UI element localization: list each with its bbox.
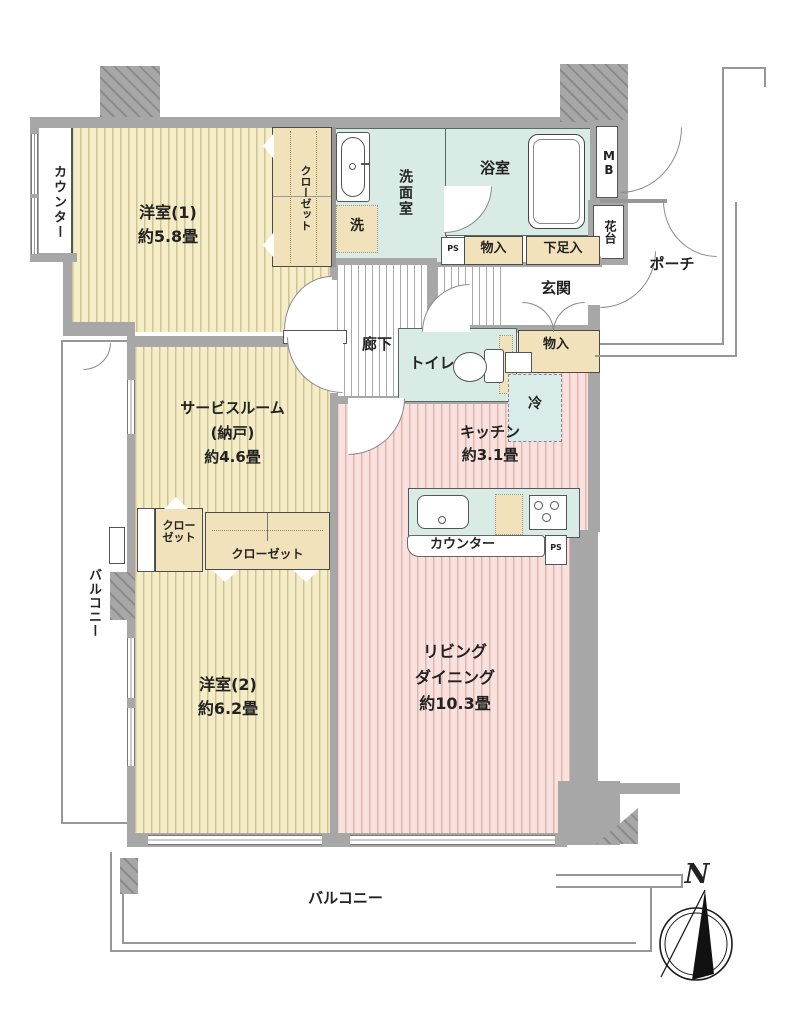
label-balcony-left: バルコニー <box>80 545 100 660</box>
label-closet-small: クローゼット <box>158 520 200 556</box>
closet-west1-dots-1 <box>290 131 292 263</box>
label-washroom: 洗面室 <box>392 140 412 245</box>
window-western2-west-1 <box>127 638 135 698</box>
room-service-western2-floor <box>135 347 330 835</box>
window-western2-west-2 <box>127 708 135 766</box>
wall-western1-bottom <box>63 322 135 336</box>
label-meter-box: MB <box>599 140 615 186</box>
door-balcony-partition <box>83 343 111 370</box>
label-refrigerator: 冷 <box>521 397 549 415</box>
balcony-bottom-bottom-inner <box>122 942 636 944</box>
wall-porch-top <box>600 199 667 203</box>
label-closet-wide: クローゼット <box>215 548 320 564</box>
label-flower-stand: 花台 <box>600 211 616 253</box>
closet-west1-dots-2 <box>316 131 318 263</box>
window-living-south <box>350 835 555 845</box>
label-service-name: サービスルーム <box>145 400 320 420</box>
label-porch: ポーチ <box>638 256 706 276</box>
toilet-tank <box>484 349 504 383</box>
wall-divider-lower <box>330 393 338 835</box>
label-western1-size: 約5.8畳 <box>108 228 228 248</box>
label-living-size: 約10.3畳 <box>405 695 505 715</box>
label-western2-name: 洋室(2) <box>168 676 288 696</box>
door-meter-box <box>620 127 682 193</box>
porch-line-inner-v <box>722 67 724 343</box>
label-balcony-bottom: バルコニー <box>298 890 393 910</box>
label-storage-entrance: 物入 <box>530 338 582 354</box>
label-pipe-space-kitchen: PS <box>545 544 567 556</box>
porch-line-outer-h <box>595 355 737 357</box>
closet-wide-dash-line <box>212 530 323 531</box>
balcony-bottom-hatch <box>120 858 138 894</box>
label-western2-size: 約6.2畳 <box>168 700 288 720</box>
closet-wide-center-line <box>267 513 268 541</box>
balcony-bottom-bottom-outer <box>110 950 652 952</box>
label-service-size: 約4.6畳 <box>185 449 280 469</box>
wall-service-top <box>127 336 290 347</box>
door-porch-gate <box>663 201 717 257</box>
label-bathroom: 浴室 <box>465 160 525 178</box>
label-toilet: トイレ <box>406 355 458 373</box>
porch-line-outer-v <box>735 202 737 355</box>
label-service-sub: (納戸) <box>185 425 280 445</box>
label-counter-bay: カウンター <box>45 150 65 255</box>
toilet-bowl <box>453 352 487 382</box>
bathtub-inner <box>533 139 580 224</box>
porch-line-top-hook <box>764 67 766 87</box>
window-counter-2 <box>31 198 38 254</box>
wall-west-hatch-step <box>110 572 135 620</box>
entrance-small-box <box>505 352 532 373</box>
kitchen-sink <box>417 495 469 529</box>
compass-icon <box>648 886 752 990</box>
label-washing-machine: 洗 <box>343 219 371 237</box>
label-pipe-space-upper: PS <box>441 245 465 257</box>
window-service-west <box>127 380 135 434</box>
balcony-bottom-band-top <box>556 874 682 876</box>
balcony-left-bottom <box>61 822 127 824</box>
stove-burner-1 <box>534 501 543 510</box>
kitchen-counter-hatch <box>495 494 523 535</box>
porch-line-top-h <box>722 67 766 69</box>
balcony-left-outer <box>61 340 63 824</box>
wall-protrusion-left <box>100 66 160 117</box>
label-kitchen-name: キッチン <box>448 424 532 442</box>
label-kitchen-counter: カウンター <box>415 538 510 554</box>
wall-corridor-top <box>335 258 437 265</box>
wall-se-stub <box>618 783 680 794</box>
label-closet-west1: クローゼット <box>293 134 311 262</box>
label-living-line1: リビング <box>405 643 505 663</box>
stove-burner-3 <box>542 513 551 522</box>
label-living-line2: ダイニング <box>400 669 510 689</box>
wall-east-lower <box>570 530 598 783</box>
window-counter-1 <box>31 134 38 194</box>
label-shoe-cabinet: 下足入 <box>526 242 600 258</box>
label-kitchen-size: 約3.1畳 <box>450 447 530 465</box>
wall-protrusion-right <box>560 64 628 122</box>
floorplan: カウンター 洋室(1) 約5.8畳 クローゼット 洗面室 洗 浴室 MB 花台 … <box>0 0 788 1010</box>
window-western2-south <box>148 835 322 845</box>
stove-burner-2 <box>550 501 559 510</box>
closet-row-strip <box>137 508 155 572</box>
vanity-drain <box>349 163 356 170</box>
wall-left-step <box>63 256 72 332</box>
kitchen-sink-drain <box>438 516 446 524</box>
label-corridor: 廊下 <box>348 336 406 354</box>
label-western1-name: 洋室(1) <box>108 204 228 224</box>
vanity-tap <box>361 163 370 165</box>
balcony-left-top <box>61 340 127 342</box>
label-entrance: 玄関 <box>530 280 582 298</box>
balcony-utility-box <box>109 527 125 564</box>
counter-bay-edge <box>71 127 73 253</box>
balcony-bottom-left-outer <box>110 852 112 952</box>
porch-line-inner-h <box>600 343 724 345</box>
label-storage-upper: 物入 <box>464 242 523 258</box>
